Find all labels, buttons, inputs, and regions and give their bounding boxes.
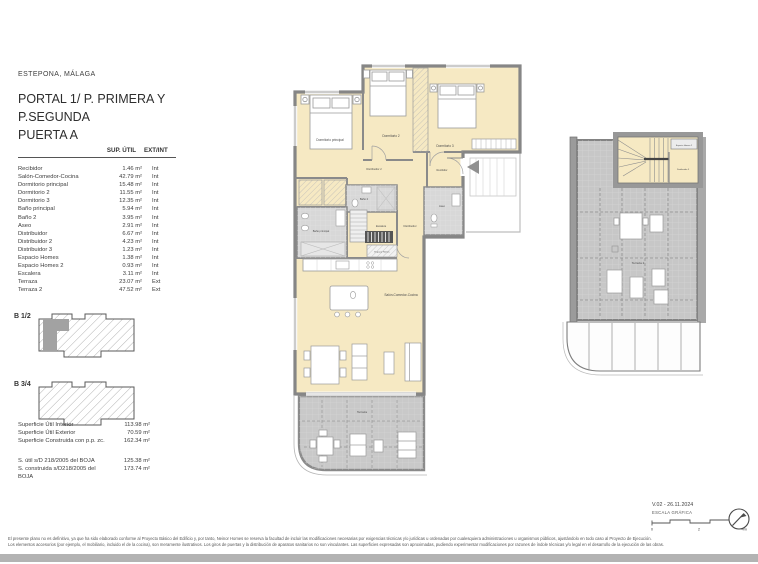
- col-header-sup-util: SUP. ÚTIL: [96, 147, 142, 154]
- label-aseo: Aseo: [439, 204, 445, 208]
- room-name: Espacio Homes: [18, 254, 96, 262]
- room-name: Recibidor: [18, 165, 96, 173]
- title-line-3: PUERTA A: [18, 126, 165, 144]
- room-loc: Int: [142, 189, 176, 197]
- room-area: 1.46 m²: [96, 165, 142, 173]
- total-name: Superficie Útil Interior: [18, 421, 106, 429]
- room-name: Terraza 2: [18, 286, 96, 294]
- label-bano-2: Baño 2: [360, 197, 369, 201]
- upper-stair-box: Espacio Homes 2 Distribuidor 3: [613, 132, 703, 188]
- table-row: Escalera3.11 m²Int: [18, 270, 176, 278]
- area-table-header: SUP. ÚTIL EXT/INT: [18, 147, 176, 158]
- totals-block: Superficie Útil Interior113.98 m² Superf…: [18, 421, 150, 445]
- room-name: Aseo: [18, 222, 96, 230]
- room-area: 11.55 m²: [96, 189, 142, 197]
- table-row: Distribuidor 31.23 m²Int: [18, 246, 176, 254]
- title-line-1: PORTAL 1/ P. PRIMERA Y: [18, 90, 165, 108]
- bed-dormitorio-2: [364, 70, 413, 116]
- total-value: 113.98 m²: [106, 421, 150, 429]
- plan-sheet: ESTEPONA, MÁLAGA PORTAL 1/ P. PRIMERA Y …: [0, 0, 758, 564]
- room-area: 15.48 m²: [96, 181, 142, 189]
- boja-name: S. útil s/D 218/2005 del BOJA: [18, 457, 106, 465]
- room-name: Distribuidor: [18, 230, 96, 238]
- label-salon: Salón-Comedor-Cocina: [384, 293, 418, 297]
- room-name: Distribuidor 3: [18, 246, 96, 254]
- room-name: Escalera: [18, 270, 96, 278]
- room-area: 6.67 m²: [96, 230, 142, 238]
- label-distribuidor: Distribuidor: [403, 224, 416, 228]
- boja-value: 125.38 m²: [106, 457, 150, 465]
- room-loc: Int: [142, 205, 176, 213]
- table-row: Salón-Comedor-Cocina42.79 m²Int: [18, 173, 176, 181]
- boja-row: S. construida s/D218/2005 del BOJA173.74…: [18, 465, 150, 473]
- area-table: Recibidor1.46 m²Int Salón-Comedor-Cocina…: [18, 165, 176, 295]
- footer-bar: [0, 554, 758, 562]
- keyplan-b12-label: B 1/2: [14, 313, 31, 320]
- col-header-ext-int: EXT/INT: [142, 147, 176, 154]
- room-loc: Int: [142, 197, 176, 205]
- table-row: Recibidor1.46 m²Int: [18, 165, 176, 173]
- table-row: Espacio Homes 20.93 m²Int: [18, 262, 176, 270]
- pergola: [563, 322, 703, 375]
- room-area: 12.35 m²: [96, 197, 142, 205]
- room-area: 3.11 m²: [96, 270, 142, 278]
- sheet-title: PORTAL 1/ P. PRIMERA Y P.SEGUNDA PUERTA …: [18, 90, 165, 144]
- room-loc: Int: [142, 222, 176, 230]
- table-row: Baño 23.95 m²Int: [18, 214, 176, 222]
- title-line-2: P.SEGUNDA: [18, 108, 165, 126]
- room-name: Dormitorio 2: [18, 189, 96, 197]
- room-area: 2.91 m²: [96, 222, 142, 230]
- main-floor-plan: Dormitorio principal Dormitorio 2 Dormit…: [283, 56, 535, 508]
- room-loc: Ext: [142, 286, 176, 294]
- total-value: 162.34 m²: [106, 437, 150, 445]
- scale-tick-2: 2: [698, 527, 701, 532]
- total-row: Superficie Útil Interior113.98 m²: [18, 421, 150, 429]
- aseo-area: [424, 187, 463, 235]
- room-loc: Int: [142, 165, 176, 173]
- table-row: Dormitorio 312.35 m²Int: [18, 197, 176, 205]
- boja-row: S. útil s/D 218/2005 del BOJA125.38 m²: [18, 457, 150, 465]
- table-row: Terraza 247.52 m²Ext: [18, 286, 176, 294]
- room-name: Baño principal: [18, 205, 96, 213]
- label-bano-principal: Baño principal: [313, 229, 330, 233]
- room-name: Dormitorio principal: [18, 181, 96, 189]
- table-row: Terraza23.07 m²Ext: [18, 278, 176, 286]
- label-distribuidor-3: Distribuidor 3: [677, 168, 690, 171]
- bed-dormitorio-3: [430, 84, 484, 128]
- label-recibidor: Recibidor: [437, 168, 448, 172]
- total-name: Superficie Construida con p.p. zc.: [18, 437, 106, 445]
- room-loc: Int: [142, 230, 176, 238]
- keyplan-b34-label: B 3/4: [14, 381, 31, 388]
- label-dormitorio-2: Dormitorio 2: [382, 134, 400, 138]
- label-dormitorio-3: Dormitorio 3: [436, 144, 454, 148]
- room-area: 47.52 m²: [96, 286, 142, 294]
- table-row: Baño principal5.94 m²Int: [18, 205, 176, 213]
- scale-label: ESCALA GRÁFICA: [652, 510, 692, 515]
- label-espacio-homes-2: Espacio Homes 2: [676, 145, 693, 147]
- boja-value: 173.74 m²: [106, 465, 150, 481]
- table-row: Aseo2.91 m²Int: [18, 222, 176, 230]
- table-row: Dormitorio 211.55 m²Int: [18, 189, 176, 197]
- boja-name: S. construida s/D218/2005 del BOJA: [18, 465, 106, 481]
- label-espacio-homes: Espacio Homes: [374, 252, 390, 254]
- room-loc: Int: [142, 270, 176, 278]
- room-area: 1.23 m²: [96, 246, 142, 254]
- label-terraza: Terraza: [357, 410, 367, 414]
- table-row: Dormitorio principal15.48 m²Int: [18, 181, 176, 189]
- keyplan-b12: [38, 310, 136, 360]
- room-loc: Int: [142, 173, 176, 181]
- location-label: ESTEPONA, MÁLAGA: [18, 71, 96, 78]
- disclaimer-line-2: Los elementos accesorios (por ejemplo, e…: [8, 542, 752, 547]
- total-value: 70.59 m²: [106, 429, 150, 437]
- room-name: Baño 2: [18, 214, 96, 222]
- left-wall: [570, 137, 577, 323]
- room-area: 0.93 m²: [96, 262, 142, 270]
- bano-2-area: [346, 185, 397, 212]
- room-area: 4.23 m²: [96, 238, 142, 246]
- version-label: V.02 - 26.11.2024: [652, 502, 693, 508]
- room-name: Distribuidor 2: [18, 238, 96, 246]
- room-loc: Ext: [142, 278, 176, 286]
- room-loc: Int: [142, 181, 176, 189]
- table-row: Espacio Homes1.38 m²Int: [18, 254, 176, 262]
- room-name: Espacio Homes 2: [18, 262, 96, 270]
- entry-arrow-icon: [467, 160, 479, 174]
- room-name: Dormitorio 3: [18, 197, 96, 205]
- label-dormitorio-principal: Dormitorio principal: [316, 138, 344, 142]
- table-row: Distribuidor 24.23 m²Int: [18, 238, 176, 246]
- total-name: Superficie Útil Exterior: [18, 429, 106, 437]
- room-area: 23.07 m²: [96, 278, 142, 286]
- room-area: 42.79 m²: [96, 173, 142, 181]
- room-loc: Int: [142, 238, 176, 246]
- label-terraza-2: Terraza 2: [632, 261, 645, 265]
- label-escalera: Escalera: [376, 224, 387, 228]
- room-loc: Int: [142, 214, 176, 222]
- label-distribuidor-2: Distribuidor 2: [366, 167, 382, 171]
- scale-tick-0: 0: [651, 527, 654, 532]
- room-name: Terraza: [18, 278, 96, 286]
- table-row: Distribuidor6.67 m²Int: [18, 230, 176, 238]
- total-row: Superficie Construida con p.p. zc.162.34…: [18, 437, 150, 445]
- total-row: Superficie Útil Exterior70.59 m²: [18, 429, 150, 437]
- room-loc: Int: [142, 246, 176, 254]
- room-name: Salón-Comedor-Cocina: [18, 173, 96, 181]
- room-loc: Int: [142, 254, 176, 262]
- disclaimer-line-1: El presente plano no es definitivo, ya q…: [8, 536, 752, 541]
- room-area: 3.95 m²: [96, 214, 142, 222]
- north-compass-icon: [726, 506, 752, 532]
- room-loc: Int: [142, 262, 176, 270]
- room-area: 1.38 m²: [96, 254, 142, 262]
- room-area: 5.94 m²: [96, 205, 142, 213]
- boja-block: S. útil s/D 218/2005 del BOJA125.38 m² S…: [18, 457, 150, 473]
- keyplan-highlight: [43, 319, 57, 351]
- upper-floor-plan: Espacio Homes 2 Distribuidor 3 Terraza 2: [556, 128, 738, 382]
- kitchen-counter: [303, 259, 397, 271]
